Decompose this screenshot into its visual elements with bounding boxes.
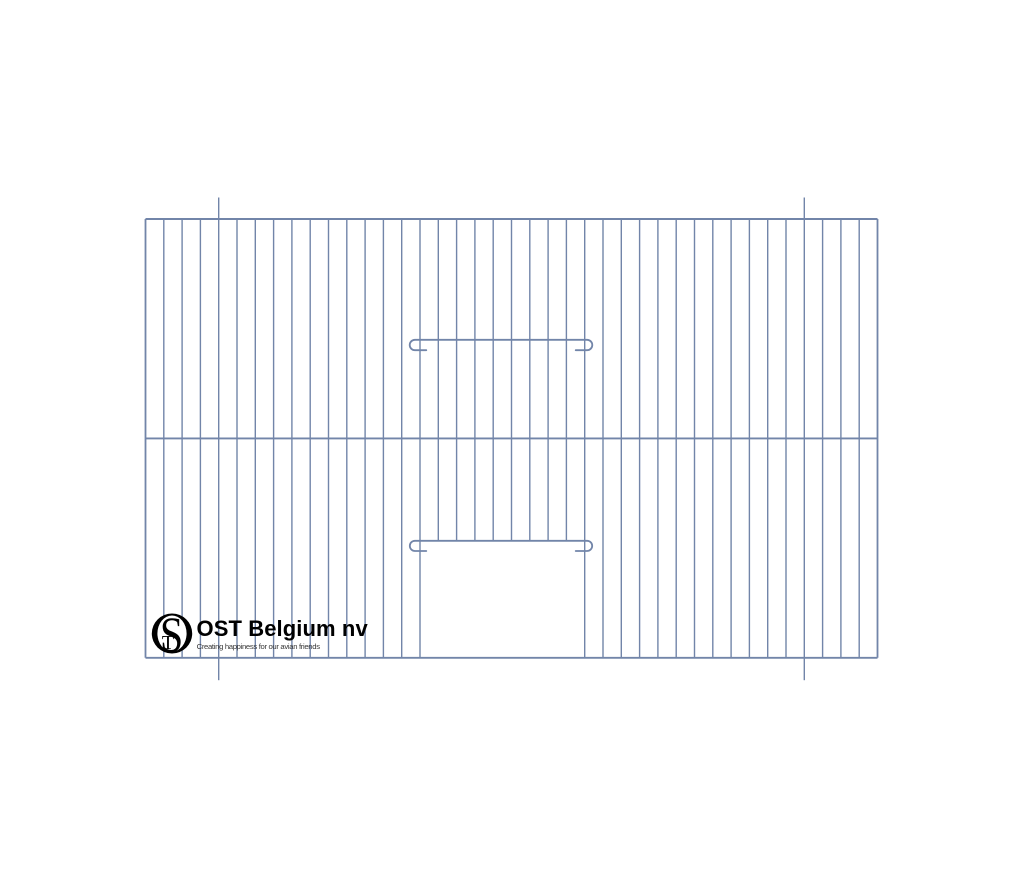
svg-text:S: S (160, 607, 183, 662)
svg-text:Creating happiness for our avi: Creating happiness for our avian friends (197, 642, 321, 651)
svg-text:OST Belgium nv: OST Belgium nv (197, 616, 369, 641)
